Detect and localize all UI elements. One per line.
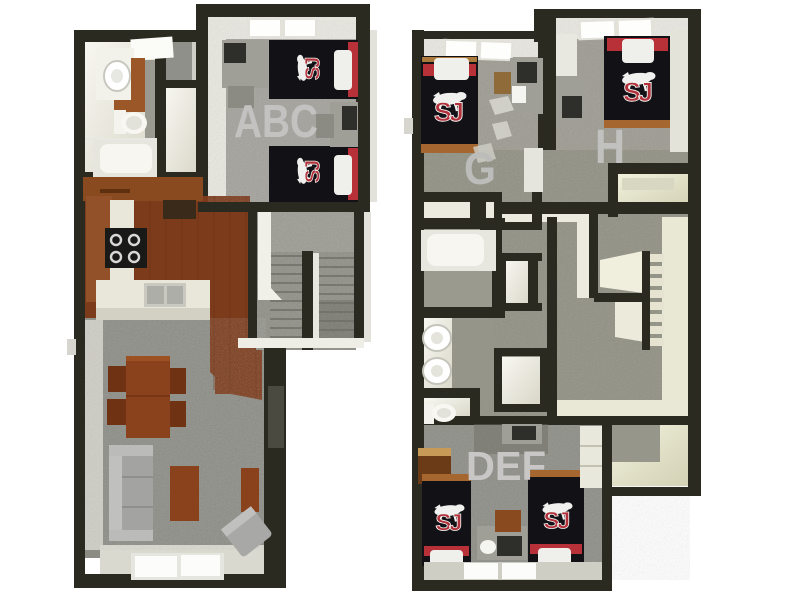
svg-text:G: G bbox=[464, 143, 496, 194]
svg-text:ABC: ABC bbox=[234, 95, 318, 147]
svg-text:DEF: DEF bbox=[466, 443, 546, 489]
svg-text:H: H bbox=[595, 121, 625, 174]
